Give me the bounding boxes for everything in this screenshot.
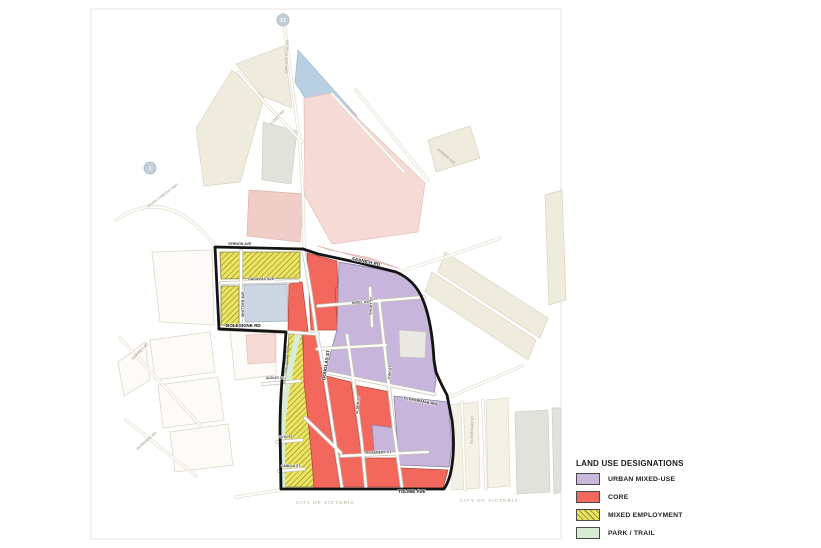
street-label-whittier: WHITTIER AVE <box>241 291 245 317</box>
land-use-map-page: 17 1 VERNON AVE CADILLAC AVE WHITTIER AV… <box>0 0 821 548</box>
legend-label: CORE <box>608 494 628 501</box>
street-label-audley: AUDLEY ST <box>266 376 284 380</box>
street-label-camilla: CAMILLA ST <box>281 464 300 468</box>
hwy1-number: 1 <box>149 166 152 172</box>
legend-item-urban-mixed-use: URBAN MIXED-USE <box>576 473 776 485</box>
legend-label: PARK / TRAIL <box>608 530 655 537</box>
municipality-label-2: CITY OF VICTORIA <box>460 498 519 503</box>
core-swatch <box>576 491 600 503</box>
mixed-employment-swatch <box>576 509 600 521</box>
legend-item-mixed-employment: MIXED EMPLOYMENT <box>576 509 776 521</box>
urban-mixed-use-swatch <box>576 473 600 485</box>
map-legend: LAND USE DESIGNATIONS URBAN MIXED-USE CO… <box>576 459 776 545</box>
legend-label: URBAN MIXED-USE <box>608 476 675 483</box>
legend-label: MIXED EMPLOYMENT <box>608 512 683 519</box>
street-label-tolmie: TOLMIE AVE <box>398 489 425 494</box>
legend-item-park-trail: PARK / TRAIL <box>576 527 776 539</box>
highway-shield-1: 1 <box>144 162 156 174</box>
street-label-vernon: VERNON AVE <box>228 242 252 246</box>
street-label-glyn: GLYN ST <box>279 435 293 439</box>
park-trail-swatch <box>576 527 600 539</box>
legend-item-core: CORE <box>576 491 776 503</box>
street-label-patricia-bay: PATRICIA BAY HWY <box>284 40 289 75</box>
highway-shield-17: 17 <box>277 14 289 26</box>
legend-title: LAND USE DESIGNATIONS <box>576 459 776 468</box>
hwy17-number: 17 <box>280 18 286 24</box>
street-label-trans-canada: TRANS CANADA HWY <box>146 182 179 209</box>
street-label-boleskine: BOLESKINE RD <box>226 323 261 328</box>
street-label-cadillac: CADILLAC AVE <box>248 277 275 281</box>
municipality-label-1: CITY OF VICTORIA <box>296 500 355 505</box>
special-site-block <box>244 284 288 322</box>
